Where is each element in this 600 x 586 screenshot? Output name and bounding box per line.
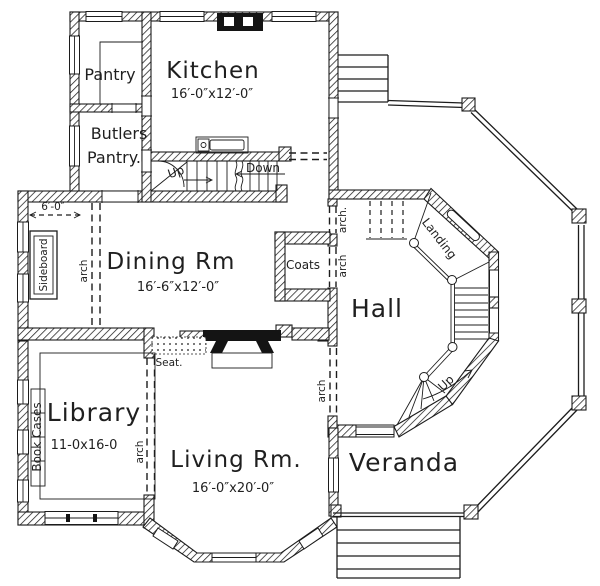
label-coats: Coats <box>286 258 320 272</box>
window <box>212 553 256 562</box>
window <box>490 270 499 333</box>
window <box>18 380 29 404</box>
window <box>18 274 29 302</box>
window <box>329 458 339 492</box>
label-kitchen-dims: 16′-0″x12′-0″ <box>171 87 253 102</box>
rail-post <box>572 209 586 223</box>
kitchen-range <box>217 13 263 31</box>
label-arch-hall-1: arch. <box>337 207 349 233</box>
label-veranda: Veranda <box>349 448 459 477</box>
label-dining-dims: 16′-6″x12′-0″ <box>137 280 219 295</box>
label-seat: Seat. <box>155 357 182 369</box>
kitchen-back-door <box>329 98 338 118</box>
label-arch-hall-2: arch <box>337 255 349 278</box>
window-seat <box>152 337 206 354</box>
label-arch-living: arch <box>316 380 328 403</box>
label-dim-6ft: 6′-0″ <box>41 201 65 213</box>
newel-post <box>410 239 419 248</box>
veranda-steps <box>333 513 470 578</box>
window <box>86 12 122 22</box>
window <box>18 480 29 502</box>
label-dining: Dining Rm <box>107 249 236 275</box>
walls <box>18 12 499 562</box>
window <box>18 430 29 454</box>
newel-post <box>420 373 429 382</box>
floor-plan-page: Kitchen 16′-0″x12′-0″ Pantry Butlers Pan… <box>0 0 600 586</box>
label-arch-bay: arch <box>78 260 90 283</box>
kitchen-sink <box>196 137 248 153</box>
label-library: Library <box>47 398 141 427</box>
label-butlers: Butlers <box>91 124 148 143</box>
label-kitchen: Kitchen <box>166 58 259 84</box>
rail-post <box>462 98 475 111</box>
window <box>299 528 323 549</box>
window <box>160 12 204 22</box>
label-arch-library: arch <box>134 441 146 464</box>
labels: Kitchen 16′-0″x12′-0″ Pantry Butlers Pan… <box>30 58 459 496</box>
rail-post <box>464 505 478 519</box>
fireplace <box>203 330 281 368</box>
newel-post <box>448 343 457 352</box>
newel-post <box>448 276 457 285</box>
label-library-dims: 11-0x16-0 <box>51 438 118 453</box>
label-sideboard: Sideboard <box>38 238 50 291</box>
label-living-dims: 16′-0″x20′-0″ <box>192 481 274 496</box>
floor-plan-drawing: Kitchen 16′-0″x12′-0″ Pantry Butlers Pan… <box>0 0 600 586</box>
rail-post <box>572 396 586 410</box>
label-down-main: Down <box>246 161 280 175</box>
label-living: Living Rm. <box>170 447 301 473</box>
windows <box>18 12 499 563</box>
window <box>18 222 29 252</box>
window <box>70 126 80 166</box>
rail-post <box>572 299 586 313</box>
window <box>446 208 481 242</box>
label-hall: Hall <box>351 294 403 323</box>
window <box>272 12 316 22</box>
label-pantry: Pantry <box>84 65 135 84</box>
label-butlers-pantry: Pantry. <box>87 148 141 167</box>
back-steps <box>338 55 388 102</box>
window <box>70 36 80 74</box>
label-bookcases: Book Cases <box>30 402 44 471</box>
window <box>45 512 118 525</box>
